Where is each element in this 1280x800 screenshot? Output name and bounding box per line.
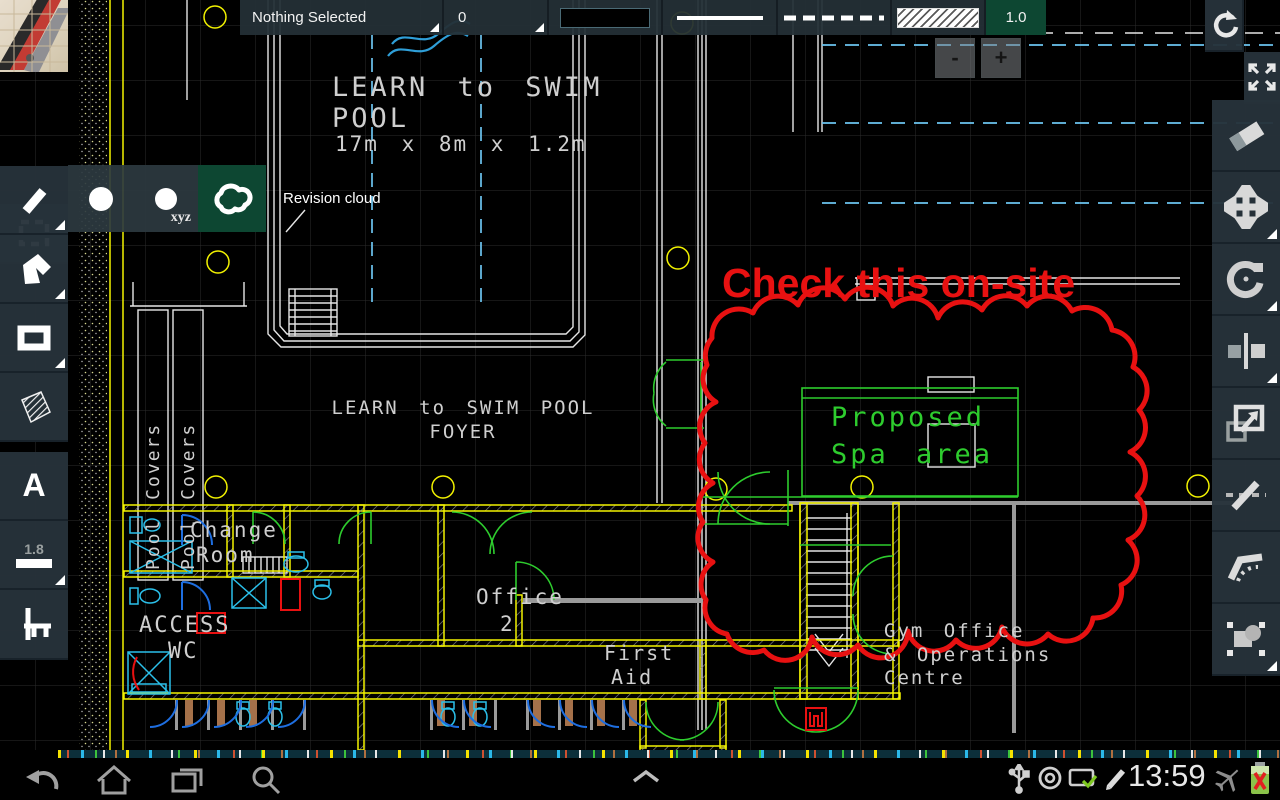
flyout-indicator-icon — [1267, 661, 1277, 671]
freehand-option[interactable] — [68, 165, 133, 232]
line-tool[interactable] — [0, 166, 68, 235]
zoom-in-label: + — [995, 45, 1008, 71]
rotate-icon — [1224, 257, 1268, 301]
draw-tools-group — [0, 166, 68, 442]
gym-3: Centre — [884, 667, 965, 689]
change-room-2: Room — [196, 543, 255, 567]
revision-cloud-option[interactable] — [198, 165, 266, 232]
access-wc-2: WC — [168, 639, 199, 664]
mirror-tool[interactable] — [1212, 316, 1280, 388]
annotation-text: Check this on-site — [722, 260, 1075, 306]
color-picker[interactable] — [549, 0, 663, 35]
nav-back-button[interactable] — [22, 763, 62, 800]
hatch-tool-icon — [15, 389, 53, 425]
coordinate-point-option[interactable]: xyz — [133, 165, 198, 232]
nav-expand-handle[interactable] — [628, 768, 664, 791]
color-swatch-black — [560, 8, 650, 28]
trim-tool[interactable] — [1212, 460, 1280, 532]
revision-cloud-tooltip: Revision cloud — [283, 190, 381, 207]
selection-status-dropdown[interactable]: Nothing Selected — [240, 0, 444, 35]
reset-view-button[interactable] — [1205, 0, 1244, 52]
trim-icon — [1224, 475, 1268, 515]
scale-icon — [1224, 401, 1268, 445]
status-battery-icon — [1248, 760, 1272, 800]
hatch-swatch — [897, 8, 979, 28]
rectangle-tool[interactable] — [0, 304, 68, 373]
foyer-2: FOYER — [429, 421, 496, 443]
gym-1: Gym Office — [884, 620, 1024, 642]
rectangle-tool-icon — [16, 324, 52, 352]
move-icon — [1224, 185, 1268, 229]
selection-status-label: Nothing Selected — [252, 9, 366, 26]
hatch-tool[interactable] — [0, 373, 68, 442]
text-tool-icon: A — [22, 467, 45, 504]
property-toolbar: Nothing Selected 0 1.0 — [240, 0, 1046, 35]
line-tool-icon — [16, 182, 52, 218]
status-smart-stay-icon — [1037, 765, 1063, 796]
zoom-out-button[interactable]: - — [935, 38, 975, 78]
gym-2: & Operations — [884, 644, 1051, 666]
spa-text-1: Proposed — [831, 402, 985, 433]
pool-title-1: LEARN to SWIM — [332, 72, 602, 103]
lineweight-tool-value: 1.8 — [24, 541, 43, 557]
xyz-label: xyz — [171, 210, 191, 226]
flyout-indicator-icon — [55, 358, 65, 368]
lineweight-value-label: 1.0 — [1006, 9, 1027, 26]
pool-covers-a: Pool Covers — [143, 423, 164, 570]
move-tool[interactable] — [1212, 172, 1280, 244]
status-stylus-icon — [1102, 764, 1128, 797]
pool-dims: 17m x 8m x 1.2m — [335, 132, 587, 156]
office-1: Office — [476, 585, 564, 609]
flyout-indicator-icon — [55, 575, 65, 585]
linetype-dashed-picker[interactable] — [778, 0, 892, 35]
status-airplane-icon — [1212, 764, 1244, 799]
nav-recents-button[interactable] — [168, 762, 208, 800]
office-2: 2 — [500, 612, 513, 636]
layer-value-label: 0 — [458, 9, 466, 26]
fit-screen-button[interactable] — [1244, 52, 1280, 104]
foyer-1: LEARN to SWIM POOL — [332, 397, 595, 419]
rotate-tool[interactable] — [1212, 244, 1280, 316]
nav-search-button[interactable] — [246, 762, 286, 800]
status-usb-icon — [1008, 764, 1030, 799]
pool-title-2: POOL — [332, 103, 409, 134]
select-similar-tool[interactable] — [1212, 604, 1280, 676]
select-similar-icon — [1224, 617, 1268, 661]
eraser-icon — [1224, 115, 1268, 155]
linetype-solid-picker[interactable] — [663, 0, 778, 35]
status-clock: 13:59 — [1128, 758, 1206, 794]
dashed-line-swatch — [784, 14, 884, 22]
chevron-up-icon — [628, 768, 664, 786]
dimension-tool[interactable] — [0, 590, 68, 660]
lineweight-bar-icon — [16, 559, 52, 568]
solid-line-swatch — [677, 16, 763, 20]
flyout-indicator-icon — [1267, 229, 1277, 239]
lineweight-value[interactable]: 1.0 — [986, 0, 1046, 35]
home-icon — [94, 762, 134, 798]
dimension-tool-icon — [14, 604, 54, 644]
app-icon[interactable] — [0, 0, 68, 72]
search-icon — [246, 762, 286, 798]
recent-apps-icon — [168, 762, 208, 798]
flyout-indicator-icon — [1267, 301, 1277, 311]
flyout-indicator-icon — [1267, 373, 1277, 383]
dot-icon — [87, 185, 115, 213]
cad-drawing-canvas[interactable]: LEARN to SWIM POOL 17m x 8m x 1.2m LEARN… — [0, 0, 1280, 758]
dropdown-arrow-icon — [535, 23, 544, 32]
polyline-tool[interactable] — [0, 235, 68, 304]
fit-screen-icon — [1246, 61, 1278, 93]
line-tool-flyout: xyz — [68, 165, 266, 232]
dropdown-arrow-icon — [430, 23, 439, 32]
access-wc-1: ACCESS — [139, 613, 230, 638]
revision-cloud-icon — [209, 181, 255, 217]
dot-icon — [153, 186, 179, 212]
fillet-icon — [1224, 545, 1268, 589]
hatch-pattern-picker[interactable] — [892, 0, 986, 35]
text-tool[interactable]: A — [0, 452, 68, 521]
reset-view-icon — [1207, 8, 1241, 42]
lineweight-tool[interactable]: 1.8 — [0, 521, 68, 590]
eraser-tool[interactable] — [1212, 100, 1280, 172]
modify-toolbar — [1212, 100, 1280, 676]
firstaid-1: First — [604, 641, 674, 665]
mirror-icon — [1224, 331, 1268, 371]
zoom-in-button[interactable]: + — [981, 38, 1021, 78]
scale-tool[interactable] — [1212, 388, 1280, 460]
drawing-edge-strip — [58, 750, 1280, 758]
annotate-tools-group: A 1.8 — [0, 452, 68, 660]
status-screen-check-icon — [1068, 765, 1098, 798]
flyout-indicator-icon — [55, 289, 65, 299]
change-room-1: Change — [190, 518, 278, 542]
back-icon — [22, 763, 62, 797]
polyline-tool-icon — [15, 251, 53, 287]
flyout-indicator-icon — [55, 220, 65, 230]
nav-home-button[interactable] — [94, 762, 134, 800]
zoom-out-label: - — [951, 45, 958, 71]
spa-text-2: Spa area — [831, 439, 993, 470]
firstaid-2: Aid — [611, 665, 653, 689]
fillet-tool[interactable] — [1212, 532, 1280, 604]
layer-dropdown[interactable]: 0 — [444, 0, 549, 35]
app-screen: LEARN to SWIM POOL 17m x 8m x 1.2m LEARN… — [0, 0, 1280, 800]
